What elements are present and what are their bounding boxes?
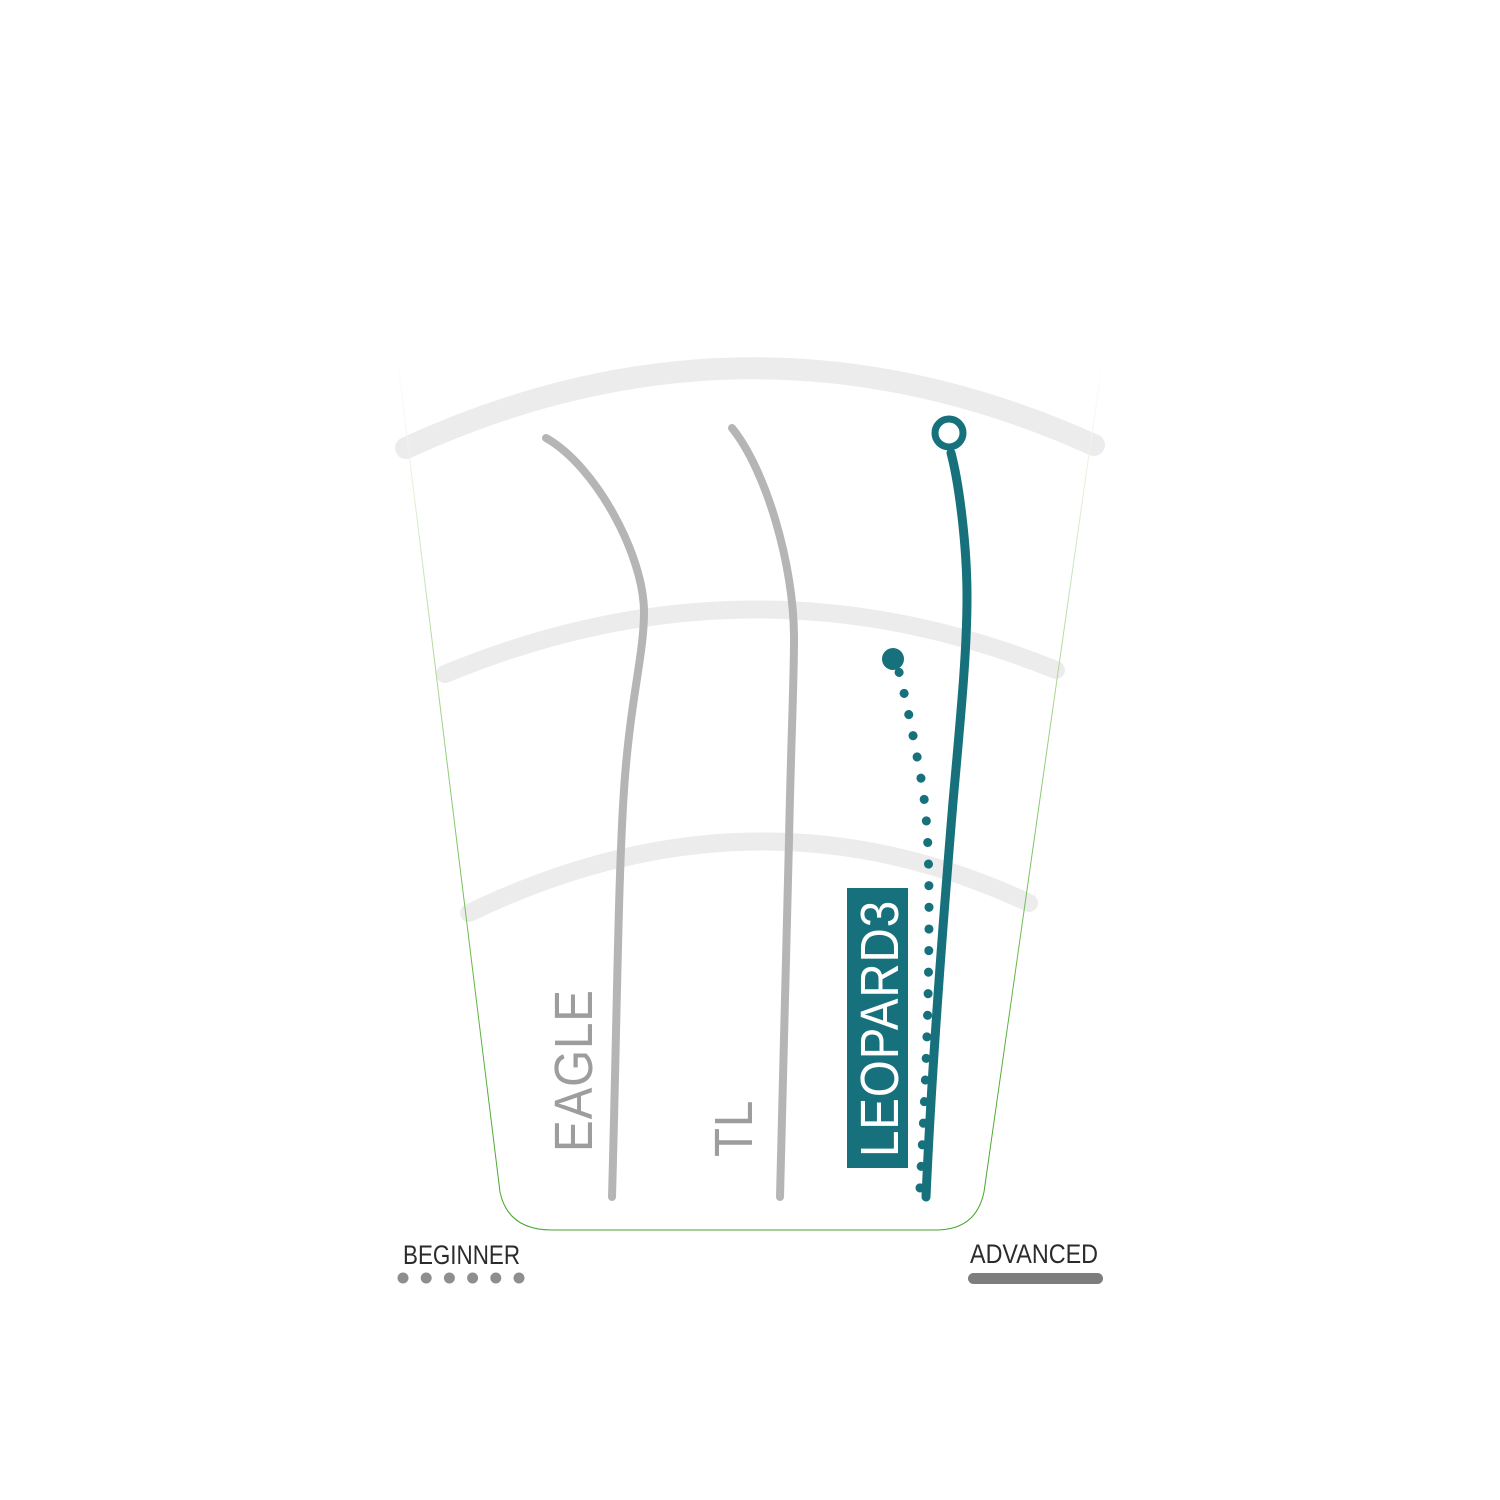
skill-legend: BEGINNER ADVANCED	[398, 1239, 1104, 1284]
beginner-dot	[444, 1273, 455, 1284]
beginner-dot	[421, 1273, 432, 1284]
flight-path-tl	[732, 428, 794, 1197]
label-leopard3: LEOPARD3	[849, 900, 910, 1157]
flight-path-leopard3	[926, 453, 967, 1197]
label-tl: TL	[703, 1100, 764, 1157]
distance-ring-1	[406, 368, 1094, 448]
beginner-dot	[514, 1273, 525, 1284]
legend-beginner-label: BEGINNER	[403, 1240, 520, 1270]
label-eagle: EAGLE	[543, 989, 604, 1152]
beginner-dot	[490, 1273, 501, 1284]
beginner-dotted-indicator	[398, 1273, 525, 1284]
advanced-solid-indicator	[968, 1273, 1103, 1284]
leopard3-dotted-end-marker	[882, 648, 904, 670]
chart-outline	[397, 356, 1103, 1230]
leopard3-end-marker	[935, 419, 963, 447]
beginner-dot	[398, 1273, 409, 1284]
disc-labels: EAGLE TL LEOPARD3	[543, 888, 910, 1168]
flight-chart: EAGLE TL LEOPARD3 BEGINNER ADVANCED	[0, 0, 1500, 1500]
beginner-dot	[467, 1273, 478, 1284]
legend-advanced-label: ADVANCED	[970, 1239, 1098, 1269]
